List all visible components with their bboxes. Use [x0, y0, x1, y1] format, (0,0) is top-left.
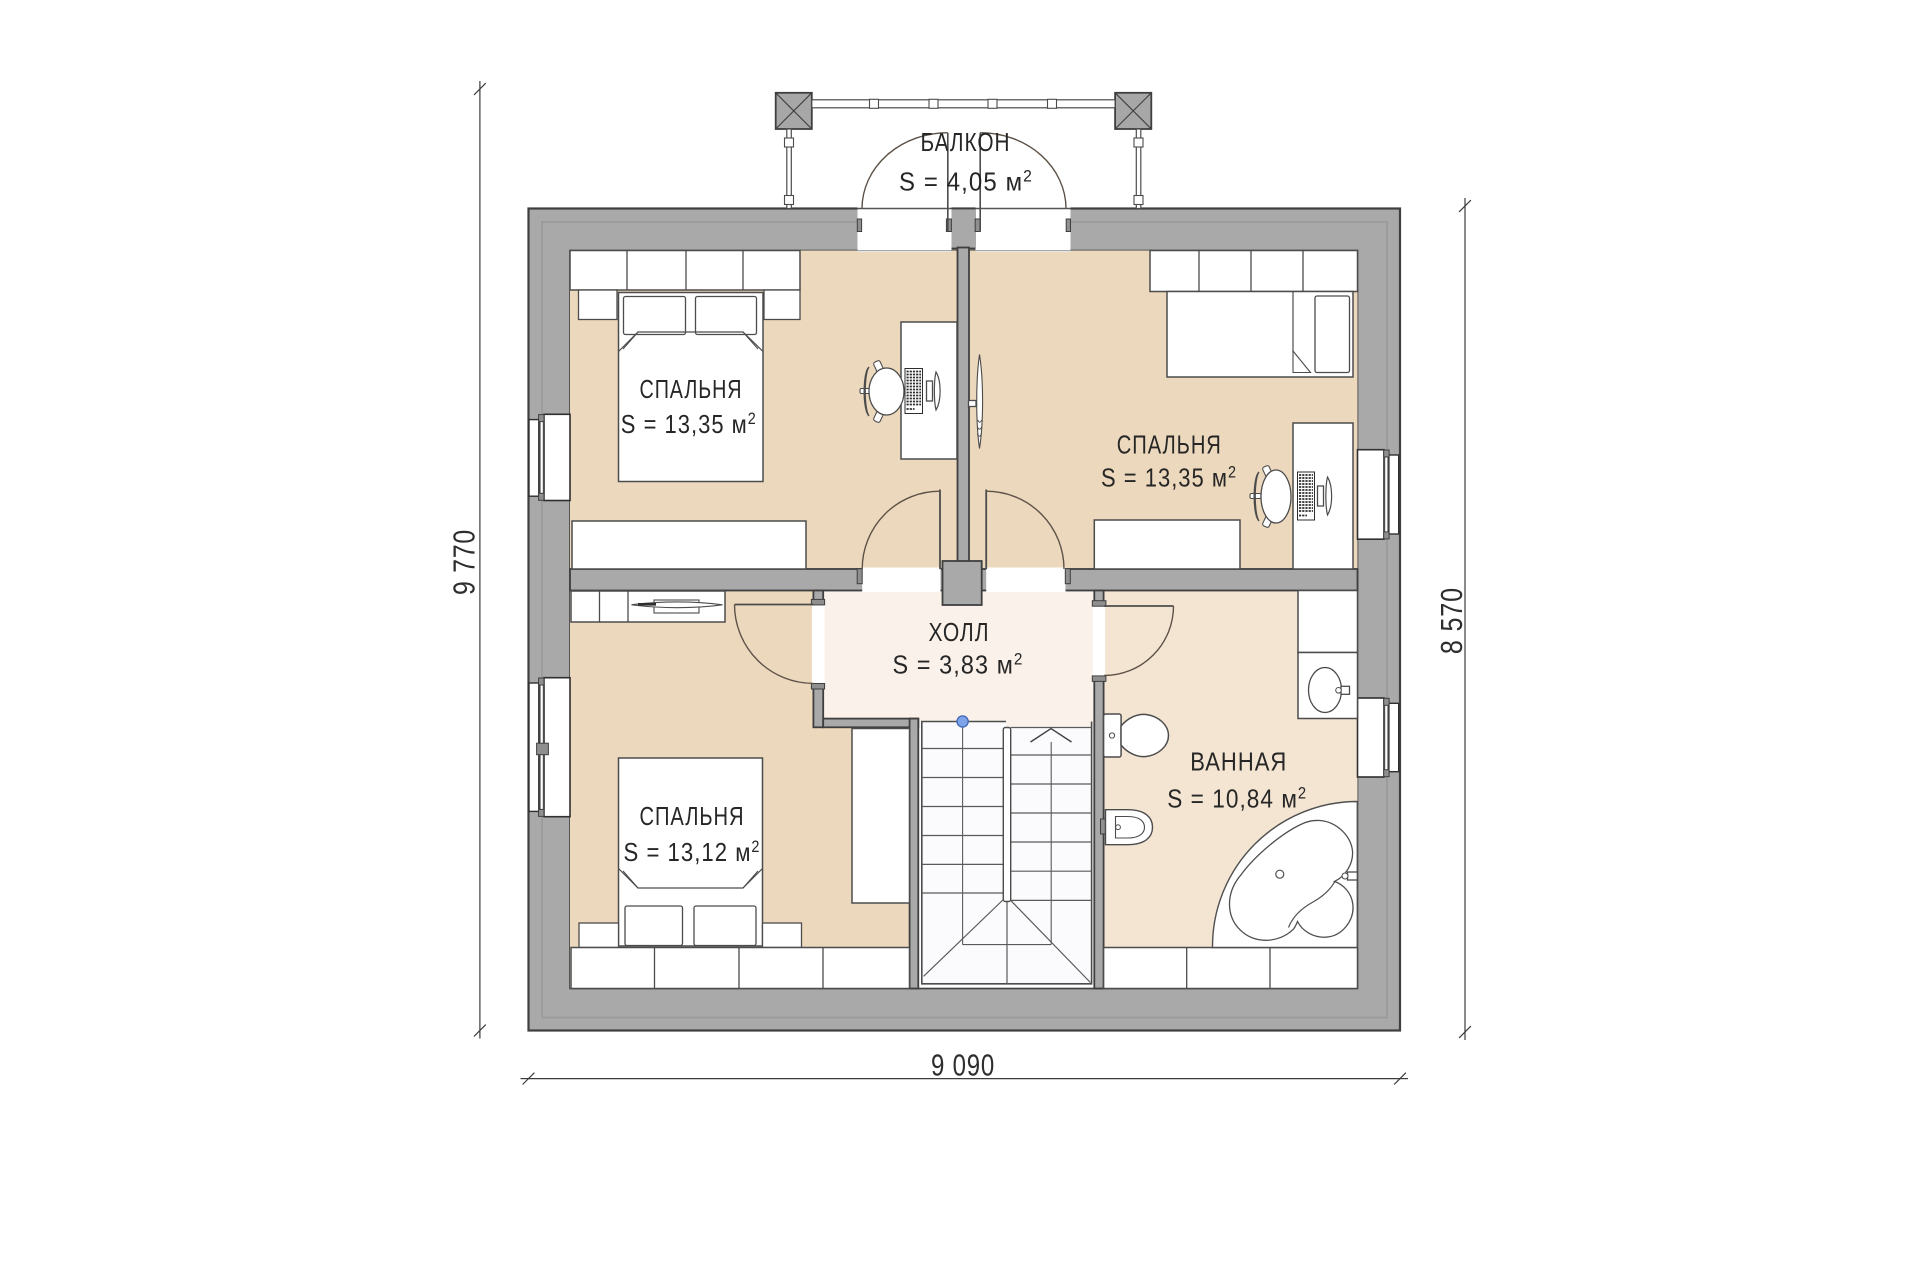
svg-text:ХОЛЛ: ХОЛЛ	[929, 617, 990, 647]
svg-text:S = 10,84 м2: S = 10,84 м2	[1167, 783, 1307, 813]
svg-text:S = 4,05 м2: S = 4,05 м2	[899, 167, 1033, 197]
svg-text:S = 13,12 м2: S = 13,12 м2	[624, 837, 761, 867]
svg-text:БАЛКОН: БАЛКОН	[921, 127, 1011, 157]
svg-text:9 770: 9 770	[447, 529, 482, 595]
svg-text:S = 13,35 м2: S = 13,35 м2	[1101, 462, 1237, 492]
svg-text:S = 3,83 м2: S = 3,83 м2	[893, 649, 1024, 679]
svg-text:8 570: 8 570	[1434, 587, 1469, 654]
svg-text:СПАЛЬНЯ: СПАЛЬНЯ	[640, 801, 745, 831]
svg-text:S = 13,35 м2: S = 13,35 м2	[621, 409, 757, 439]
svg-text:9 090: 9 090	[931, 1047, 995, 1082]
svg-text:ВАННАЯ: ВАННАЯ	[1190, 747, 1287, 777]
svg-text:СПАЛЬНЯ: СПАЛЬНЯ	[1117, 430, 1222, 460]
svg-text:СПАЛЬНЯ: СПАЛЬНЯ	[640, 374, 743, 404]
